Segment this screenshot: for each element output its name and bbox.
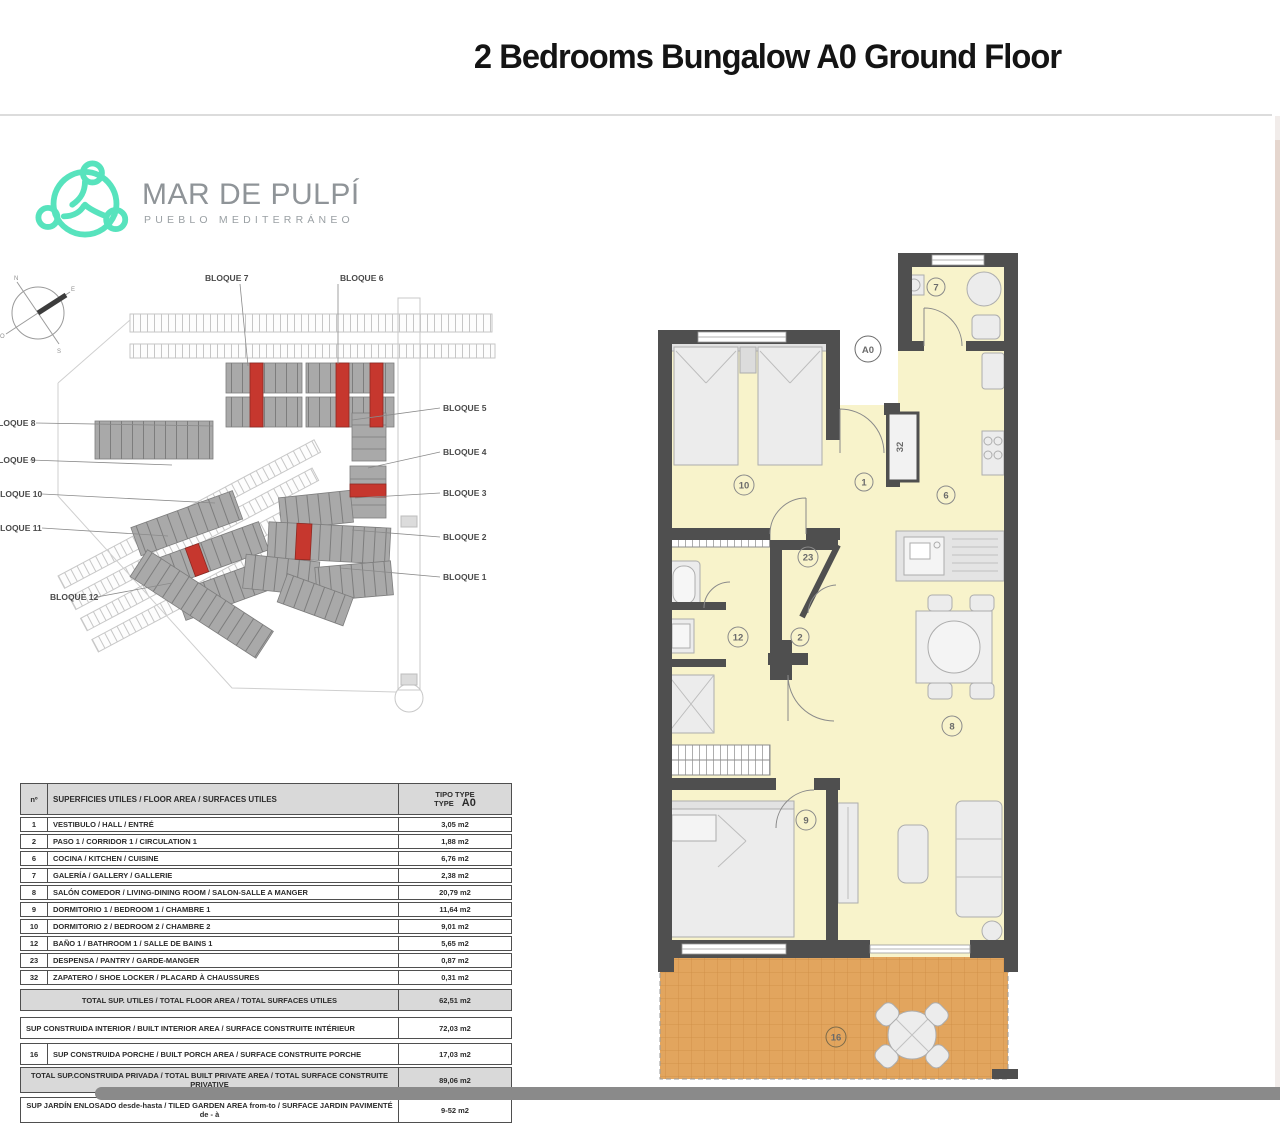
room-label-bedroom1: 9	[803, 816, 808, 827]
chair	[928, 683, 952, 699]
site-plan: N E O S	[0, 258, 520, 736]
room-label-bedroom2: 10	[739, 481, 750, 492]
room-label-shoe-locker: 32	[895, 442, 906, 453]
logo-tagline: PUEBLO MEDITERRÁNEO	[144, 214, 354, 226]
nightstand	[740, 347, 756, 373]
header-type-word: TYPE	[434, 799, 454, 808]
unit-label: A0	[862, 345, 874, 356]
table-row: 6 COCINA / KITCHEN / CUISINE 6,76 m2	[20, 851, 512, 866]
side-table	[982, 921, 1002, 941]
table-row: 8 SALÓN COMEDOR / LIVING-DINING ROOM / S…	[20, 885, 512, 900]
table-row: 12 BAÑO 1 / BATHROOM 1 / SALLE DE BAINS …	[20, 936, 512, 951]
svg-text:S: S	[57, 349, 61, 355]
header-num: nº	[21, 784, 48, 814]
table-row: 10 DORMITORIO 2 / BEDROOM 2 / CHAMBRE 2 …	[20, 919, 512, 934]
table-row: 9 DORMITORIO 1 / BEDROOM 1 / CHAMBRE 1 1…	[20, 902, 512, 917]
label-bloque-7: BLOQUE 7	[205, 273, 249, 283]
built-interior-row: SUP CONSTRUIDA INTERIOR / BUILT INTERIOR…	[20, 1017, 512, 1039]
label-bloque-10: BLOQUE 10	[0, 489, 42, 499]
sofa	[956, 801, 1002, 917]
built-porch-row: 16 SUP CONSTRUIDA PORCHE / BUILT PORCH A…	[20, 1043, 512, 1065]
header-type-value: A0	[462, 799, 476, 808]
area-table: nº SUPERFICIES UTILES / FLOOR AREA / SUR…	[20, 783, 512, 1123]
water-heater	[967, 272, 1001, 306]
bed	[674, 347, 738, 465]
label-bloque-4: BLOQUE 4	[443, 447, 487, 457]
room-label-living: 8	[949, 722, 954, 733]
label-bloque-1: BLOQUE 1	[443, 572, 487, 582]
room-label-pantry: 23	[803, 553, 814, 564]
header-type: TIPO TYPE TYPE A0	[398, 784, 511, 814]
page-title: 2 Bedrooms Bungalow A0 Ground Floor	[376, 38, 1158, 77]
header-divider	[0, 114, 1272, 116]
table-row: 7 GALERÍA / GALLERY / GALLERIE 2,38 m2	[20, 868, 512, 883]
table-header-row: nº SUPERFICIES UTILES / FLOOR AREA / SUR…	[20, 783, 512, 815]
appliance	[972, 315, 1000, 339]
table-row: 1 VESTIBULO / HALL / ENTRÉ 3,05 m2	[20, 817, 512, 832]
room-label-porch: 16	[831, 1033, 842, 1044]
chair	[970, 595, 994, 611]
svg-text:E: E	[71, 287, 75, 293]
logo-name: MAR DE PULPÍ	[142, 178, 360, 212]
chair	[970, 683, 994, 699]
vertical-scrollbar-thumb[interactable]	[1275, 140, 1280, 440]
header-desc: SUPERFICIES UTILES / FLOOR AREA / SURFAC…	[48, 784, 398, 814]
mar-de-pulpi-knot-icon	[30, 156, 140, 246]
room-label-hall: 1	[861, 478, 867, 489]
room-label-kitchen: 6	[943, 491, 948, 502]
label-bloque-5: BLOQUE 5	[443, 403, 487, 413]
horizontal-scrollbar-thumb[interactable]	[95, 1087, 1280, 1100]
room-label-corridor: 2	[797, 633, 802, 644]
label-bloque-3: BLOQUE 3	[443, 488, 487, 498]
label-bloque-11: BLOQUE 11	[0, 523, 42, 533]
table-row: 32 ZAPATERO / SHOE LOCKER / PLACARD À CH…	[20, 970, 512, 985]
garden-row: SUP JARDÍN ENLOSADO desde-hasta / TILED …	[20, 1097, 512, 1123]
svg-text:N: N	[14, 276, 18, 282]
armchair	[898, 825, 928, 883]
pillow	[672, 815, 716, 841]
label-bloque-2: BLOQUE 2	[443, 532, 487, 542]
label-bloque-8: BLOQUE 8	[0, 418, 36, 428]
room-label-bathroom: 12	[733, 633, 744, 644]
svg-text:O: O	[0, 334, 5, 340]
floor-plan: A0 7 10 1 32 6 23 2 12 8 9 16	[640, 245, 1040, 1090]
chair	[928, 595, 952, 611]
label-bloque-12: BLOQUE 12	[50, 592, 98, 602]
porch-floor	[660, 957, 1008, 1079]
table-row: 23 DESPENSA / PANTRY / GARDE-MANGER 0,87…	[20, 953, 512, 968]
label-bloque-9: BLOQUE 9	[0, 455, 36, 465]
room-label-galeria: 7	[933, 283, 938, 294]
compass-icon: N E O S	[0, 276, 75, 355]
roads-and-parking	[58, 298, 495, 712]
table-row: 2 PASO 1 / CORRIDOR 1 / CIRCULATION 1 1,…	[20, 834, 512, 849]
label-bloque-6: BLOQUE 6	[340, 273, 384, 283]
fridge	[982, 353, 1004, 389]
bed	[758, 347, 822, 465]
total-utiles-row: TOTAL SUP. UTILES / TOTAL FLOOR AREA / T…	[20, 989, 512, 1011]
